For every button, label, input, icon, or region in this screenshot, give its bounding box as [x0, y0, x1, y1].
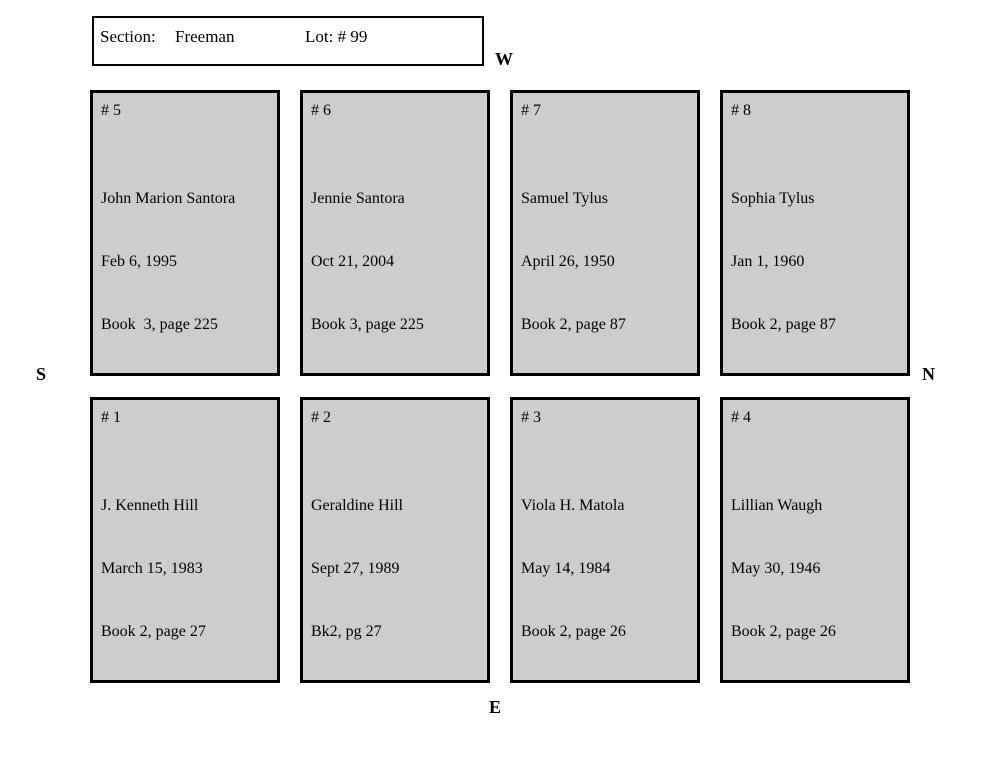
plot-4: # 4 Lillian Waugh May 30, 1946 Book 2, p…: [720, 397, 910, 683]
plot-book: Book 2, page 26: [521, 621, 689, 642]
plot-7: # 7 Samuel Tylus April 26, 1950 Book 2, …: [510, 90, 700, 376]
plot-6: # 6 Jennie Santora Oct 21, 2004 Book 3, …: [300, 90, 490, 376]
plot-number: # 7: [521, 100, 689, 121]
plot-number: # 1: [101, 407, 269, 428]
plot-date: Jan 1, 1960: [731, 251, 899, 272]
plot-name: John Marion Santora: [101, 188, 269, 209]
plot-date: April 26, 1950: [521, 251, 689, 272]
section-label: Section:: [100, 27, 156, 47]
plot-book: Bk2, pg 27: [311, 621, 479, 642]
plot-info: J. Kenneth Hill March 15, 1983 Book 2, p…: [101, 453, 269, 684]
plot-2: # 2 Geraldine Hill Sept 27, 1989 Bk2, pg…: [300, 397, 490, 683]
plot-book: Book 2, page 26: [731, 621, 899, 642]
plot-date: May 30, 1946: [731, 558, 899, 579]
compass-north: N: [922, 364, 935, 385]
plot-book: Book 2, page 87: [731, 314, 899, 335]
plot-number: # 6: [311, 100, 479, 121]
plot-name: Lillian Waugh: [731, 495, 899, 516]
plot-book: Book 2, page 27: [101, 621, 269, 642]
lot-label: Lot: # 99: [305, 27, 367, 47]
plot-info: John Marion Santora Feb 6, 1995 Book 3, …: [101, 146, 269, 377]
plot-name: Viola H. Matola: [521, 495, 689, 516]
plot-date: May 14, 1984: [521, 558, 689, 579]
section-lot-header: Section: Freeman Lot: # 99: [92, 16, 484, 66]
plot-date: Sept 27, 1989: [311, 558, 479, 579]
plot-book: Book 3, page 225: [311, 314, 479, 335]
plot-5: # 5 John Marion Santora Feb 6, 1995 Book…: [90, 90, 280, 376]
compass-south: S: [36, 364, 46, 385]
plot-name: J. Kenneth Hill: [101, 495, 269, 516]
plot-3: # 3 Viola H. Matola May 14, 1984 Book 2,…: [510, 397, 700, 683]
plot-info: Jennie Santora Oct 21, 2004 Book 3, page…: [311, 146, 479, 377]
plot-number: # 2: [311, 407, 479, 428]
cemetery-lot-diagram: Section: Freeman Lot: # 99 W S N E # 5 J…: [0, 0, 1000, 773]
section-value: Freeman: [175, 27, 234, 47]
plot-info: Lillian Waugh May 30, 1946 Book 2, page …: [731, 453, 899, 684]
plot-info: Viola H. Matola May 14, 1984 Book 2, pag…: [521, 453, 689, 684]
plot-info: Sophia Tylus Jan 1, 1960 Book 2, page 87: [731, 146, 899, 377]
plot-date: March 15, 1983: [101, 558, 269, 579]
plot-number: # 5: [101, 100, 269, 121]
plot-1: # 1 J. Kenneth Hill March 15, 1983 Book …: [90, 397, 280, 683]
plot-name: Geraldine Hill: [311, 495, 479, 516]
plot-book: Book 2, page 87: [521, 314, 689, 335]
plot-date: Feb 6, 1995: [101, 251, 269, 272]
plot-date: Oct 21, 2004: [311, 251, 479, 272]
plot-number: # 4: [731, 407, 899, 428]
plot-name: Jennie Santora: [311, 188, 479, 209]
plot-info: Samuel Tylus April 26, 1950 Book 2, page…: [521, 146, 689, 377]
plot-name: Sophia Tylus: [731, 188, 899, 209]
plot-info: Geraldine Hill Sept 27, 1989 Bk2, pg 27: [311, 453, 479, 684]
plot-number: # 3: [521, 407, 689, 428]
plot-8: # 8 Sophia Tylus Jan 1, 1960 Book 2, pag…: [720, 90, 910, 376]
plot-number: # 8: [731, 100, 899, 121]
plot-name: Samuel Tylus: [521, 188, 689, 209]
compass-west: W: [495, 49, 513, 70]
plot-book: Book 3, page 225: [101, 314, 269, 335]
compass-east: E: [489, 697, 501, 718]
